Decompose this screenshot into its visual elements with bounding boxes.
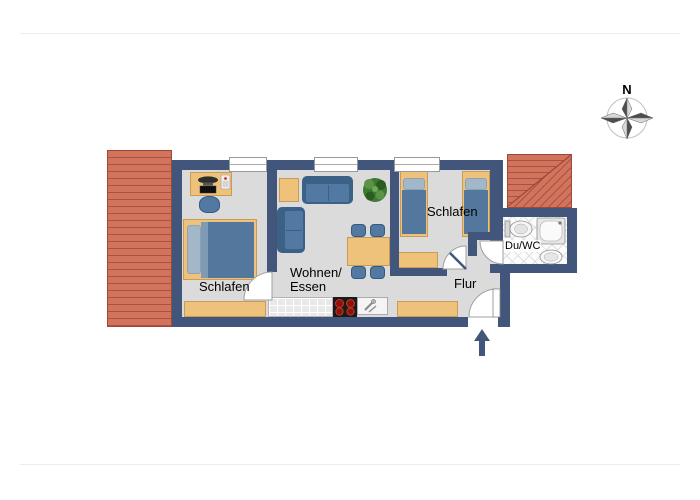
window-2	[314, 157, 358, 172]
roof-overhang	[507, 154, 572, 208]
sofa-two-seater-side	[277, 207, 305, 253]
wall-left	[172, 160, 182, 327]
bedroom-right-dresser	[398, 252, 438, 268]
dining-chair	[351, 224, 366, 237]
kitchen-sink	[357, 297, 388, 315]
desk	[190, 172, 232, 196]
desk-chair	[199, 196, 220, 213]
window-glass-line	[315, 164, 357, 165]
wall-hall-stub-v	[468, 240, 477, 256]
window-glass-line	[395, 164, 439, 165]
compass-point-w-dark	[601, 118, 627, 123]
dining-table	[347, 237, 390, 266]
floor-plan-canvas: N Schlafen Wohnen/ Essen Schlafen Flur D…	[0, 0, 700, 500]
terrace-decking	[107, 150, 172, 327]
room-label-bathroom: Du/WC	[504, 240, 541, 252]
entry-arrow	[474, 329, 490, 356]
window-3	[394, 157, 440, 172]
sofa-cushion-divider	[328, 185, 329, 201]
duvet-fold	[201, 222, 208, 278]
bedroom-left-sideboard	[184, 301, 266, 317]
window-glass-line	[230, 164, 266, 165]
single-bed-1	[400, 171, 428, 237]
cooktop	[333, 297, 357, 317]
compass-point-s-light	[622, 118, 627, 139]
room-label-living-line1: Wohnen/	[290, 266, 342, 280]
room-label-living-line2: Essen	[290, 280, 326, 294]
window-1	[229, 157, 267, 172]
double-bed	[183, 219, 257, 280]
side-table	[279, 178, 299, 202]
compass-point-n-light	[627, 98, 632, 118]
dining-chair	[351, 266, 366, 279]
sofa-two-seater	[302, 176, 353, 204]
wall-right-lower	[500, 264, 510, 327]
compass-north-label: N	[622, 82, 631, 97]
wall-hall-stub-h	[468, 232, 503, 240]
compass-rose: N	[601, 82, 653, 139]
wall-partition-bedroom-right	[390, 170, 399, 268]
page-rule-bottom	[20, 464, 680, 465]
bed-duvet	[201, 222, 254, 278]
wall-bedroom-right-bottom	[390, 268, 447, 276]
wall-bath-bottom	[490, 264, 577, 273]
kitchen-counter	[268, 297, 333, 317]
bed-pillow	[403, 178, 425, 190]
hallway-sideboard	[397, 301, 458, 317]
compass-point-e-dark	[627, 113, 653, 118]
compass-point-n-dark	[622, 98, 627, 118]
wall-bath-top	[503, 208, 577, 217]
room-label-bedroom-right: Schlafen	[427, 205, 478, 219]
compass-point-w-light	[601, 113, 627, 118]
page-rule-top	[20, 33, 680, 34]
dining-chair	[370, 224, 385, 237]
bed-pillow	[465, 178, 487, 190]
compass-point-s-dark	[627, 118, 632, 139]
bed-duvet	[402, 190, 426, 234]
room-label-hallway: Flur	[454, 277, 476, 291]
bed-pillow	[187, 225, 201, 274]
wall-partition-bedroom-left	[267, 170, 277, 272]
dining-chair	[370, 266, 385, 279]
compass-point-e-light	[627, 118, 653, 123]
wall-bottom	[172, 317, 468, 327]
sofa-cushion-divider	[286, 230, 302, 231]
room-label-bedroom-left: Schlafen	[199, 280, 250, 294]
